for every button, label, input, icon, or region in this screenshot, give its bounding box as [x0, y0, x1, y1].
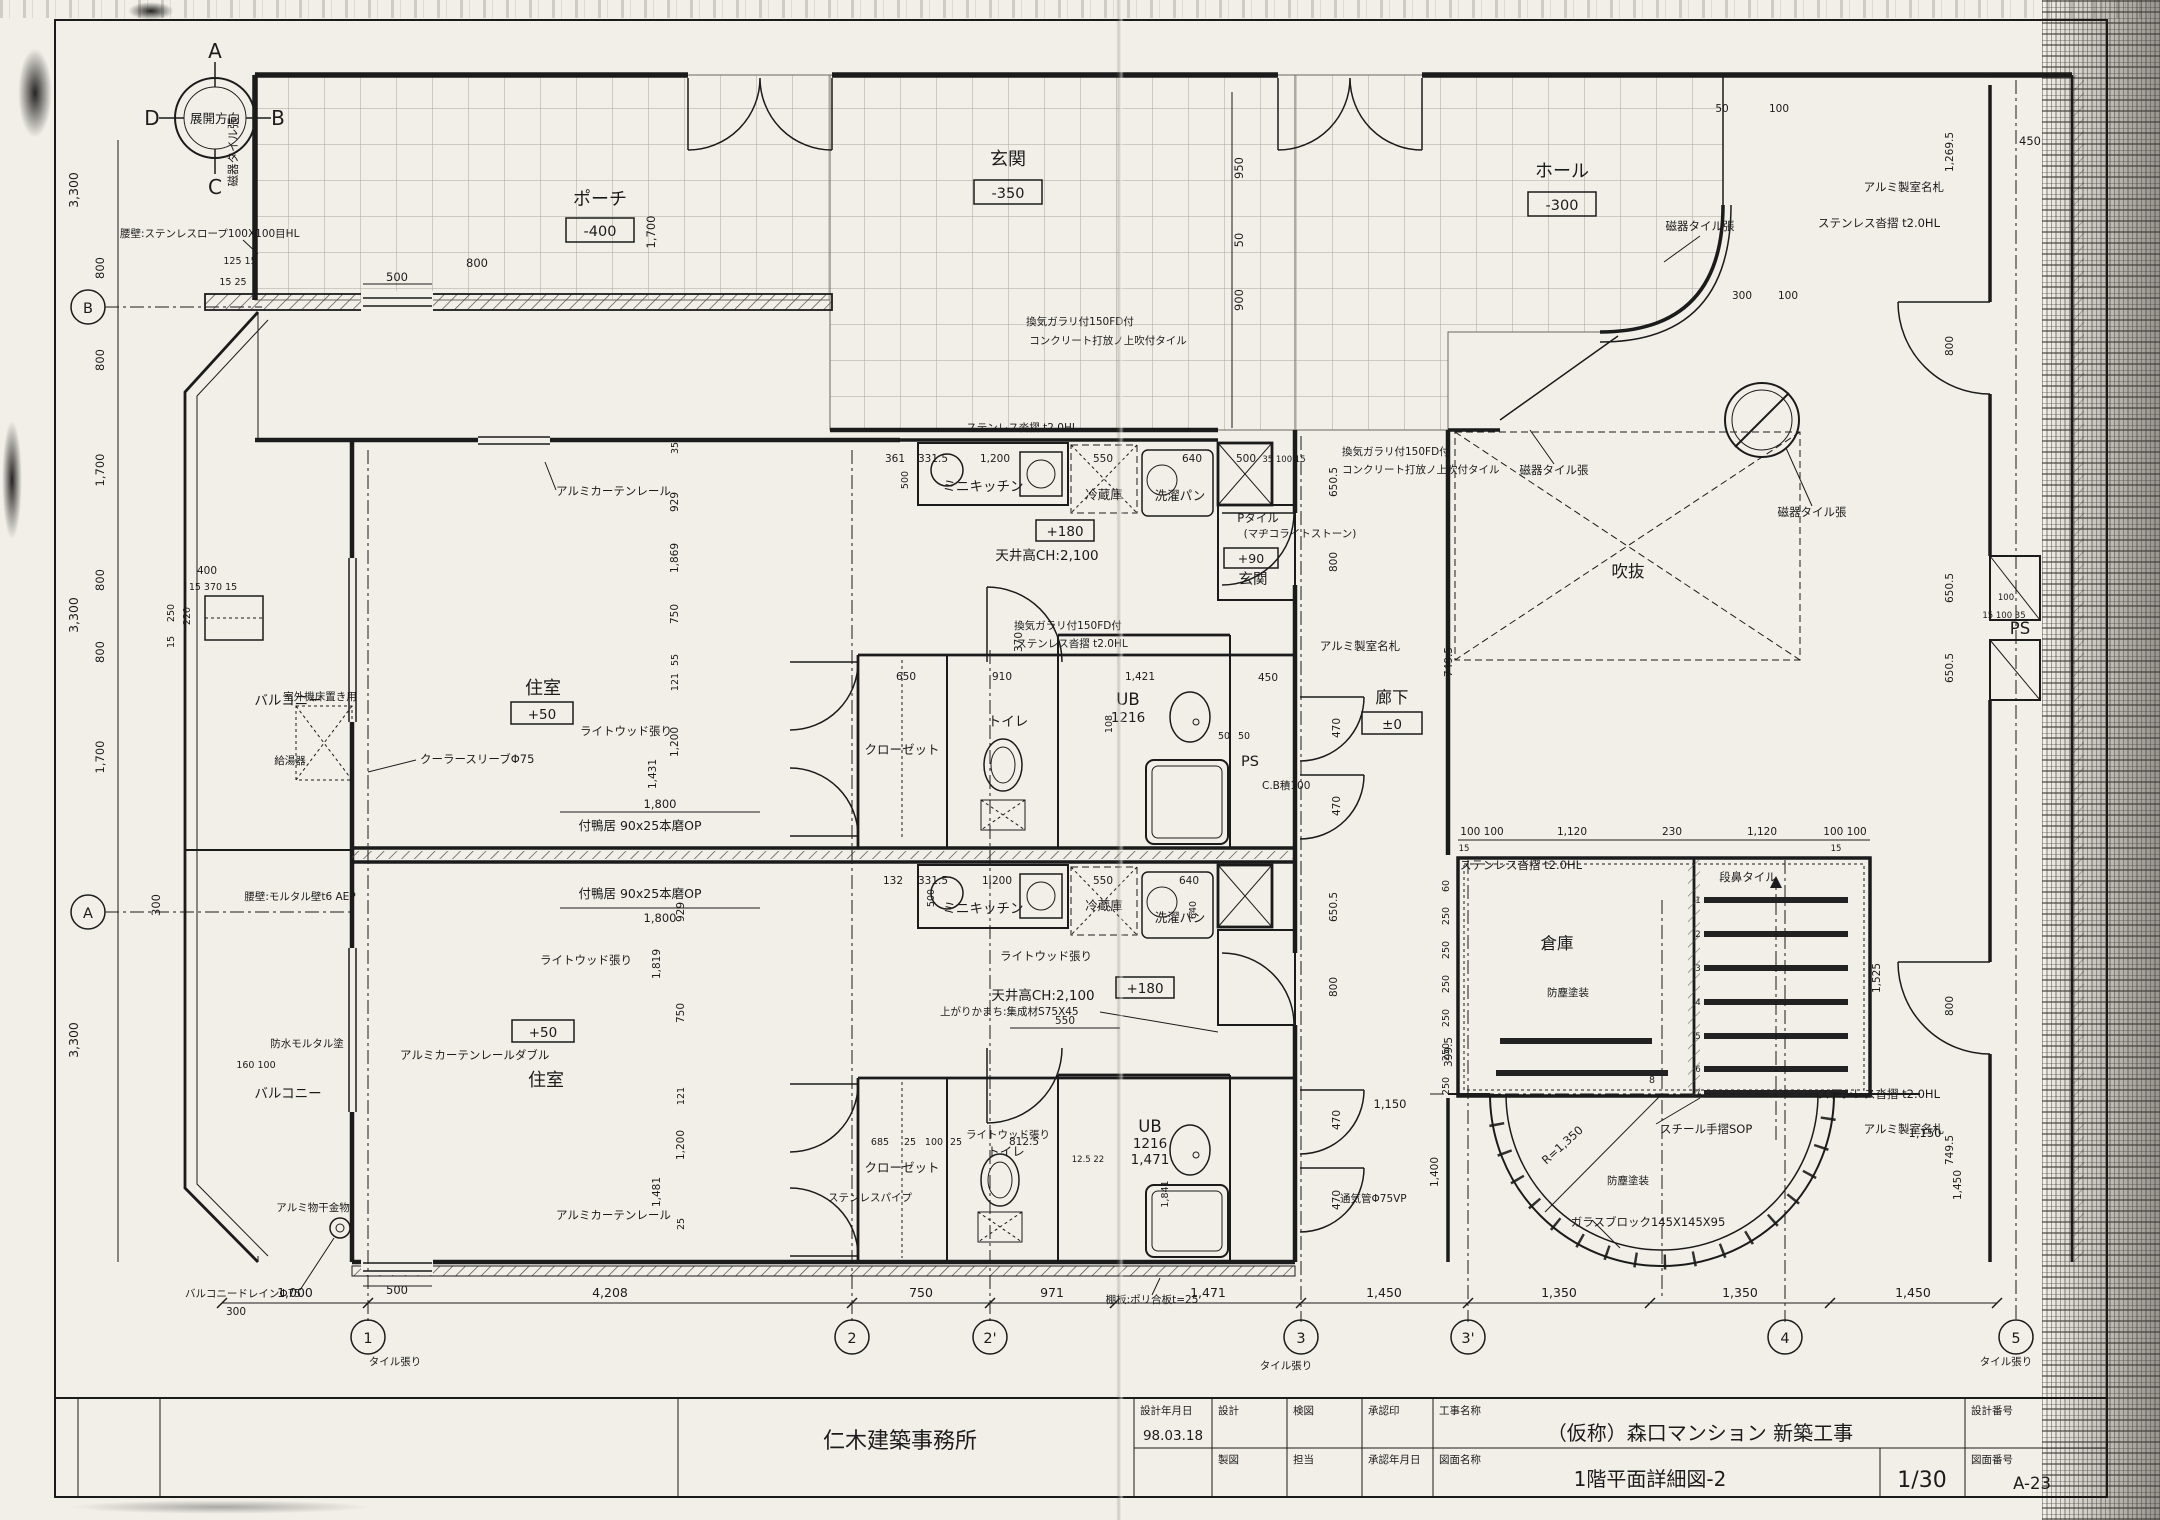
- scale-value: 1/30: [1897, 1468, 1946, 1493]
- dim: 500: [926, 889, 937, 907]
- dim: 121: [670, 673, 681, 691]
- dim: 1,700: [93, 741, 107, 774]
- dim: 15: [166, 636, 177, 648]
- note-porcelain-2: 磁器タイル張: [1778, 505, 1847, 519]
- note-curtain-rail-1: アルミカーテンレール: [556, 484, 671, 498]
- grid-bubble-3d: 3': [1461, 1331, 1474, 1347]
- note-p-tile: Pタイル: [1237, 511, 1278, 525]
- design-label: 設計: [1218, 1404, 1240, 1417]
- laundry-pan-lower: [1142, 872, 1213, 938]
- dim: 450: [1258, 672, 1278, 684]
- note-tile-2: タイル張り: [1260, 1360, 1313, 1372]
- room-entrance: 玄関: [990, 149, 1026, 170]
- room-ps-right: PS: [2010, 619, 2030, 638]
- scan-blemish: [18, 48, 52, 138]
- dim: 650.5: [1944, 573, 1956, 603]
- dim: 1,350: [1722, 1285, 1758, 1300]
- grid-bubble-a: A: [83, 906, 93, 922]
- dim: 35 100 15: [1262, 455, 1305, 465]
- note-nosing: 段鼻タイル: [1719, 870, 1777, 884]
- dim: 300: [149, 894, 163, 916]
- note-tile-3: タイル張り: [1980, 1356, 2033, 1368]
- step-number: 5: [1695, 1032, 1700, 1042]
- drawing-no-label: 図面番号: [1971, 1454, 2013, 1466]
- dim: 50: [1232, 233, 1246, 248]
- dim: 4,208: [592, 1285, 628, 1300]
- dim: 929: [675, 902, 687, 922]
- dim: 100: [1769, 103, 1789, 115]
- note-nameplate-1: アルミ製室名札: [1320, 639, 1400, 653]
- step-number: 1: [1695, 896, 1700, 906]
- room-ub-lower: UB: [1138, 1117, 1161, 1136]
- dim: 749.5: [1443, 647, 1455, 677]
- dim: 50: [1238, 731, 1250, 742]
- note-partition-wall: 腰壁:モルタル壁t6 AEP: [244, 890, 355, 903]
- dim: 1,450: [1952, 1170, 1964, 1200]
- level-living-lower: +50: [529, 1025, 558, 1041]
- dim: 250: [1441, 1009, 1452, 1027]
- dim: 470: [1331, 796, 1343, 816]
- balcony-drain: [330, 1218, 350, 1238]
- room-kitchen-lower: ミニキッチン: [943, 901, 1024, 917]
- dim: 1,120: [1747, 826, 1777, 838]
- dim: 25: [676, 1218, 687, 1230]
- dim: 331.5: [918, 875, 948, 887]
- room-closet-lower: クローゼット: [864, 1160, 939, 1175]
- dim: 950: [1232, 157, 1246, 179]
- dim: 250: [1441, 1043, 1452, 1061]
- dim: 1,819: [651, 949, 663, 979]
- dim: 400: [197, 565, 217, 577]
- scan-noise-right: [2042, 0, 2160, 1520]
- step-number: 6: [1695, 1065, 1700, 1075]
- step-number: 3: [1695, 964, 1700, 974]
- note-louver-2: 換気ガラリ付150FD付: [1342, 445, 1450, 458]
- design-date: 98.03.18: [1143, 1428, 1203, 1444]
- stair-block: [1430, 858, 1920, 1300]
- dim: 15: [1459, 844, 1470, 854]
- dim: 250: [1441, 975, 1452, 993]
- grid-bubble-2d: 2': [983, 1331, 996, 1347]
- level-entrance: -350: [992, 186, 1025, 202]
- dim: 929: [669, 492, 681, 512]
- dim: 800: [93, 641, 107, 663]
- note-kutsuzuri-1: ステンレス沓摺 t2.0HL: [1016, 637, 1128, 650]
- note-dust-paint-2: 防塵塗装: [1607, 1174, 1649, 1187]
- dim: 300: [1732, 290, 1752, 302]
- dim: 1,421: [1125, 671, 1155, 683]
- dim: 800: [93, 257, 107, 279]
- note-kutsuzuri-4: ステンレス沓摺 t2.0HL: [1818, 216, 1941, 230]
- paper-fold-crease: [1116, 0, 1124, 1520]
- dim: 361: [885, 453, 905, 465]
- dim: 1,200: [675, 1130, 687, 1160]
- dim: 900: [1232, 289, 1246, 311]
- dim: 640: [1182, 453, 1202, 465]
- dim: 800: [1328, 552, 1340, 572]
- dim: 650.5: [1328, 892, 1340, 922]
- design-no-label: 設計番号: [1971, 1404, 2013, 1417]
- note-parapet: 腰壁:ステンレスロープ100X100目HL: [120, 227, 300, 240]
- note-dust-paint-1: 防塵塗装: [1547, 986, 1589, 999]
- scan-blemish: [2, 420, 22, 540]
- note-ss-pipe: ステンレスパイプ: [828, 1192, 912, 1204]
- dim: 500: [386, 1283, 408, 1297]
- dim: 800: [1328, 977, 1340, 997]
- dim: 1,400: [1429, 1157, 1441, 1187]
- note-concrete-2: コンクリート打放ノ上吹付タイル: [1342, 463, 1500, 476]
- fixtures: [296, 443, 1228, 1257]
- dim: 15: [1831, 844, 1842, 854]
- grid-bubble-4: 4: [1780, 1331, 1789, 1347]
- room-toilet-upper: トイレ: [988, 714, 1029, 730]
- dim: 500: [1236, 453, 1256, 465]
- design-date-label: 設計年月日: [1140, 1404, 1193, 1417]
- dim: 331.5: [918, 453, 948, 465]
- dim: 1,841: [1160, 1180, 1171, 1207]
- dim: 1,450: [1895, 1285, 1931, 1300]
- dim: 1,200: [980, 453, 1010, 465]
- dim: 1,525: [1871, 963, 1883, 993]
- laundry-pan-upper: [1142, 450, 1213, 516]
- note-water-heater: 給湯器: [274, 754, 306, 767]
- step-number: 2: [1695, 930, 1700, 940]
- step-number: 4: [1695, 998, 1700, 1008]
- dim: 685: [871, 1137, 889, 1148]
- dim: 100 100: [1460, 826, 1503, 838]
- dim: 100: [1778, 290, 1798, 302]
- dim: 100: [1998, 593, 2014, 603]
- dim: 800: [1944, 996, 1956, 1016]
- project-name: （仮称）森口マンション 新築工事: [1547, 1421, 1853, 1445]
- compass-d: D: [144, 106, 159, 130]
- dim: 100 100: [1823, 826, 1866, 838]
- note-kutsuzuri-3: ステンレス沓摺 t2.0HL: [1460, 858, 1583, 872]
- dim: 550: [1093, 453, 1113, 465]
- dim: 300: [226, 1306, 246, 1318]
- dim: 230: [1662, 826, 1682, 838]
- dim: 370: [1013, 632, 1025, 652]
- grid-bubble-2: 2: [847, 1331, 856, 1347]
- dim: 3,300: [66, 1022, 81, 1058]
- dim: 550: [1093, 875, 1113, 887]
- grid-bubble-5: 5: [2011, 1331, 2020, 1347]
- washbasin-lower: [1170, 1125, 1210, 1175]
- note-vent-pipe: 通気管Φ75VP: [1340, 1192, 1407, 1205]
- scan-blemish: [70, 1500, 370, 1514]
- project-label: 工事名称: [1439, 1404, 1481, 1417]
- dim: 1,800: [644, 911, 677, 925]
- note-handrail: スチール手摺SOP: [1660, 1122, 1752, 1136]
- note-kutsuzuri-2: ステンレス沓摺 t2.0HL: [966, 421, 1078, 434]
- dim: 25: [904, 1137, 916, 1148]
- dim: 650: [896, 671, 916, 683]
- dim: 1,150: [1374, 1097, 1407, 1111]
- room-corridor: 廊下: [1376, 688, 1409, 707]
- dim: 749.5: [1944, 1135, 1956, 1165]
- dim: 220: [182, 607, 193, 625]
- dim: 12.5 22: [1072, 1155, 1104, 1165]
- dim: 1,350: [1541, 1285, 1577, 1300]
- dim: 15 370 15: [189, 582, 237, 593]
- dim: 3,300: [66, 597, 81, 633]
- note-hanger: アルミ物干金物: [276, 1201, 349, 1214]
- dim: 450: [2019, 134, 2041, 148]
- level-kitchen-upper: +180: [1046, 524, 1083, 540]
- dim: 500: [900, 471, 911, 489]
- dim: 1,120: [1557, 826, 1587, 838]
- dim: 470: [1331, 1110, 1343, 1130]
- scan-noise-top: [0, 0, 2160, 18]
- note-waterproof: 防水モルタル塗: [270, 1037, 344, 1050]
- room-ps-upper: PS: [1241, 754, 1259, 770]
- level-unit-entrance: +90: [1238, 551, 1264, 566]
- level-porch: -400: [584, 224, 617, 240]
- dim: 132: [883, 875, 903, 887]
- dim: 800: [93, 569, 107, 591]
- note-louver-3: 換気ガラリ付150FD付: [1014, 619, 1122, 632]
- note-lightwood-1: ライトウッド張り: [580, 724, 672, 738]
- grid-bubble-b: B: [83, 301, 93, 317]
- ub-width-lower: 1,471: [1131, 1152, 1170, 1168]
- note-porcelain-3: 磁器タイル張: [1666, 219, 1735, 233]
- grid-bubble-3: 3: [1296, 1331, 1305, 1347]
- note-drain: バルコニードレインΦ75: [185, 1288, 301, 1300]
- note-porcelain-4: 磁器タイル張: [226, 117, 240, 186]
- note-outdoor-unit: 室外機床置き用: [283, 690, 357, 703]
- room-storage: 倉庫: [1541, 934, 1574, 953]
- note-cb: C.B積100: [1262, 779, 1310, 792]
- dim: 108: [1104, 715, 1115, 733]
- dim: 1,150: [1909, 1126, 1942, 1140]
- tiled-floors: [255, 75, 1723, 430]
- dim: 1,700: [93, 454, 107, 487]
- dim: 160 100: [236, 1060, 275, 1071]
- drawing-name: 1階平面詳細図-2: [1574, 1467, 1727, 1491]
- room-laundry-upper: 洗濯パン: [1155, 488, 1206, 503]
- note-tile-1: タイル張り: [369, 1356, 422, 1368]
- dim: 500: [386, 270, 408, 284]
- room-hall: ホール: [1535, 161, 1589, 182]
- dim: 100: [925, 1137, 943, 1148]
- company-name: 仁木建築事務所: [823, 1429, 977, 1454]
- draft-label: 製図: [1218, 1453, 1239, 1466]
- note-kamoi-1: 付鴨居 90x25本磨OP: [578, 818, 702, 833]
- grid-bubble-1: 1: [363, 1331, 372, 1347]
- bathtub-upper: [1146, 760, 1228, 844]
- room-kitchen-upper: ミニキッチン: [943, 479, 1024, 495]
- dim: 750: [675, 1003, 687, 1023]
- level-hall: -300: [1546, 198, 1579, 214]
- dim: 550: [1055, 1015, 1075, 1027]
- dim: 1,800: [644, 797, 677, 811]
- level-living-upper: +50: [528, 707, 557, 723]
- drawing-sheet: 仁木建築事務所 設計年月日 98.03.18 設計 検図 承認印 工事名称 （仮…: [0, 0, 2160, 1520]
- dim: 640: [1188, 901, 1199, 919]
- note-ceiling-upper: 天井高CH:2,100: [995, 547, 1098, 564]
- dim: 1,200: [669, 727, 681, 757]
- level-corridor: ±0: [1382, 717, 1402, 733]
- compass-a: A: [208, 39, 222, 63]
- dim: 250: [1441, 1077, 1452, 1095]
- dim: 800: [466, 256, 488, 270]
- level-kitchen-lower: +180: [1126, 981, 1163, 997]
- dim: 250: [1441, 907, 1452, 925]
- dim: 910: [992, 671, 1012, 683]
- note-radius: R=1,350: [1539, 1123, 1586, 1167]
- room-closet-upper: クローゼット: [864, 742, 939, 757]
- note-porcelain-1: 磁器タイル張: [1520, 463, 1589, 477]
- check-label: 検図: [1293, 1404, 1314, 1417]
- dim: 750: [669, 604, 681, 624]
- washbasin-upper: [1170, 692, 1210, 742]
- dim: 650.5: [1944, 653, 1956, 683]
- compass-c: C: [208, 175, 222, 199]
- dim: 125 15: [223, 256, 256, 267]
- dim: 1,200: [982, 875, 1012, 887]
- dim: 650.5: [1328, 467, 1340, 497]
- dim: 1,269.5: [1944, 132, 1956, 172]
- note-p-tile-2: (マヂコライトストーン): [1244, 528, 1357, 540]
- dim: 470: [1331, 718, 1343, 738]
- floor-plan-drawing: 仁木建築事務所 設計年月日 98.03.18 設計 検図 承認印 工事名称 （仮…: [0, 0, 2160, 1520]
- note-concrete-1: コンクリート打放ノ上吹付タイル: [1029, 334, 1187, 347]
- dim: 800: [93, 349, 107, 371]
- scan-blemish: [128, 2, 174, 20]
- bathtub-lower: [1146, 1185, 1228, 1257]
- room-living-lower: 住室: [528, 1070, 564, 1091]
- dim: 1,481: [651, 1177, 663, 1207]
- dim: 35: [670, 442, 681, 454]
- dim: 3,300: [66, 172, 81, 208]
- room-balcony-lower: バルコニー: [254, 1086, 321, 1102]
- note-cooler-sleeve: クーラースリーブΦ75: [420, 752, 534, 766]
- dim: 470: [1331, 1190, 1343, 1210]
- dim: 50: [1218, 731, 1230, 742]
- dim: 60: [1441, 880, 1452, 892]
- dim: 1,431: [647, 759, 659, 789]
- dim: 15 25: [219, 277, 246, 288]
- step-number: 8: [1649, 1075, 1655, 1086]
- step-number: 7: [1695, 1089, 1700, 1099]
- approval-date-label: 承認年月日: [1368, 1453, 1421, 1466]
- note-curtain-rail-2: アルミカーテンレール: [556, 1208, 671, 1222]
- dim: 640: [1179, 875, 1199, 887]
- note-lightwood-2: ライトウッド張り: [540, 953, 632, 967]
- dim: 250: [166, 604, 177, 622]
- note-curtain-rail-double: アルミカーテンレールダブル: [400, 1048, 549, 1062]
- dim: 1,450: [1366, 1285, 1402, 1300]
- ub-size-lower: 1216: [1133, 1136, 1167, 1152]
- dim: 50: [1715, 103, 1728, 115]
- note-ceiling-lower: 天井高CH:2,100: [991, 987, 1094, 1004]
- drawing-name-label: 図面名称: [1439, 1453, 1481, 1466]
- dim: 121: [676, 1087, 687, 1105]
- note-kutsuzuri-5: ステンレス沓摺 t2.0HL: [1818, 1087, 1941, 1101]
- dim: 971: [1040, 1285, 1064, 1300]
- dim: 812.5: [1009, 1136, 1039, 1148]
- note-nameplate-2: アルミ製室名札: [1864, 180, 1944, 194]
- approval-label: 承認印: [1368, 1404, 1400, 1417]
- dim: 750: [909, 1285, 933, 1300]
- room-unit-entrance: 玄関: [1239, 571, 1268, 588]
- room-living-upper: 住室: [525, 678, 561, 699]
- note-lightwood-3: ライトウッド張り: [1000, 949, 1092, 963]
- dim: 1,700: [644, 216, 658, 249]
- charge-label: 担当: [1293, 1453, 1314, 1466]
- dim: 1,869: [669, 543, 681, 573]
- dim: 800: [1944, 336, 1956, 356]
- dim: 250: [1441, 941, 1452, 959]
- room-porch: ポーチ: [573, 189, 627, 210]
- dim: 25: [950, 1137, 962, 1148]
- note-kamoi-2: 付鴨居 90x25本磨OP: [578, 886, 702, 901]
- dim: 55: [670, 654, 681, 666]
- room-void: 吹抜: [1612, 562, 1645, 581]
